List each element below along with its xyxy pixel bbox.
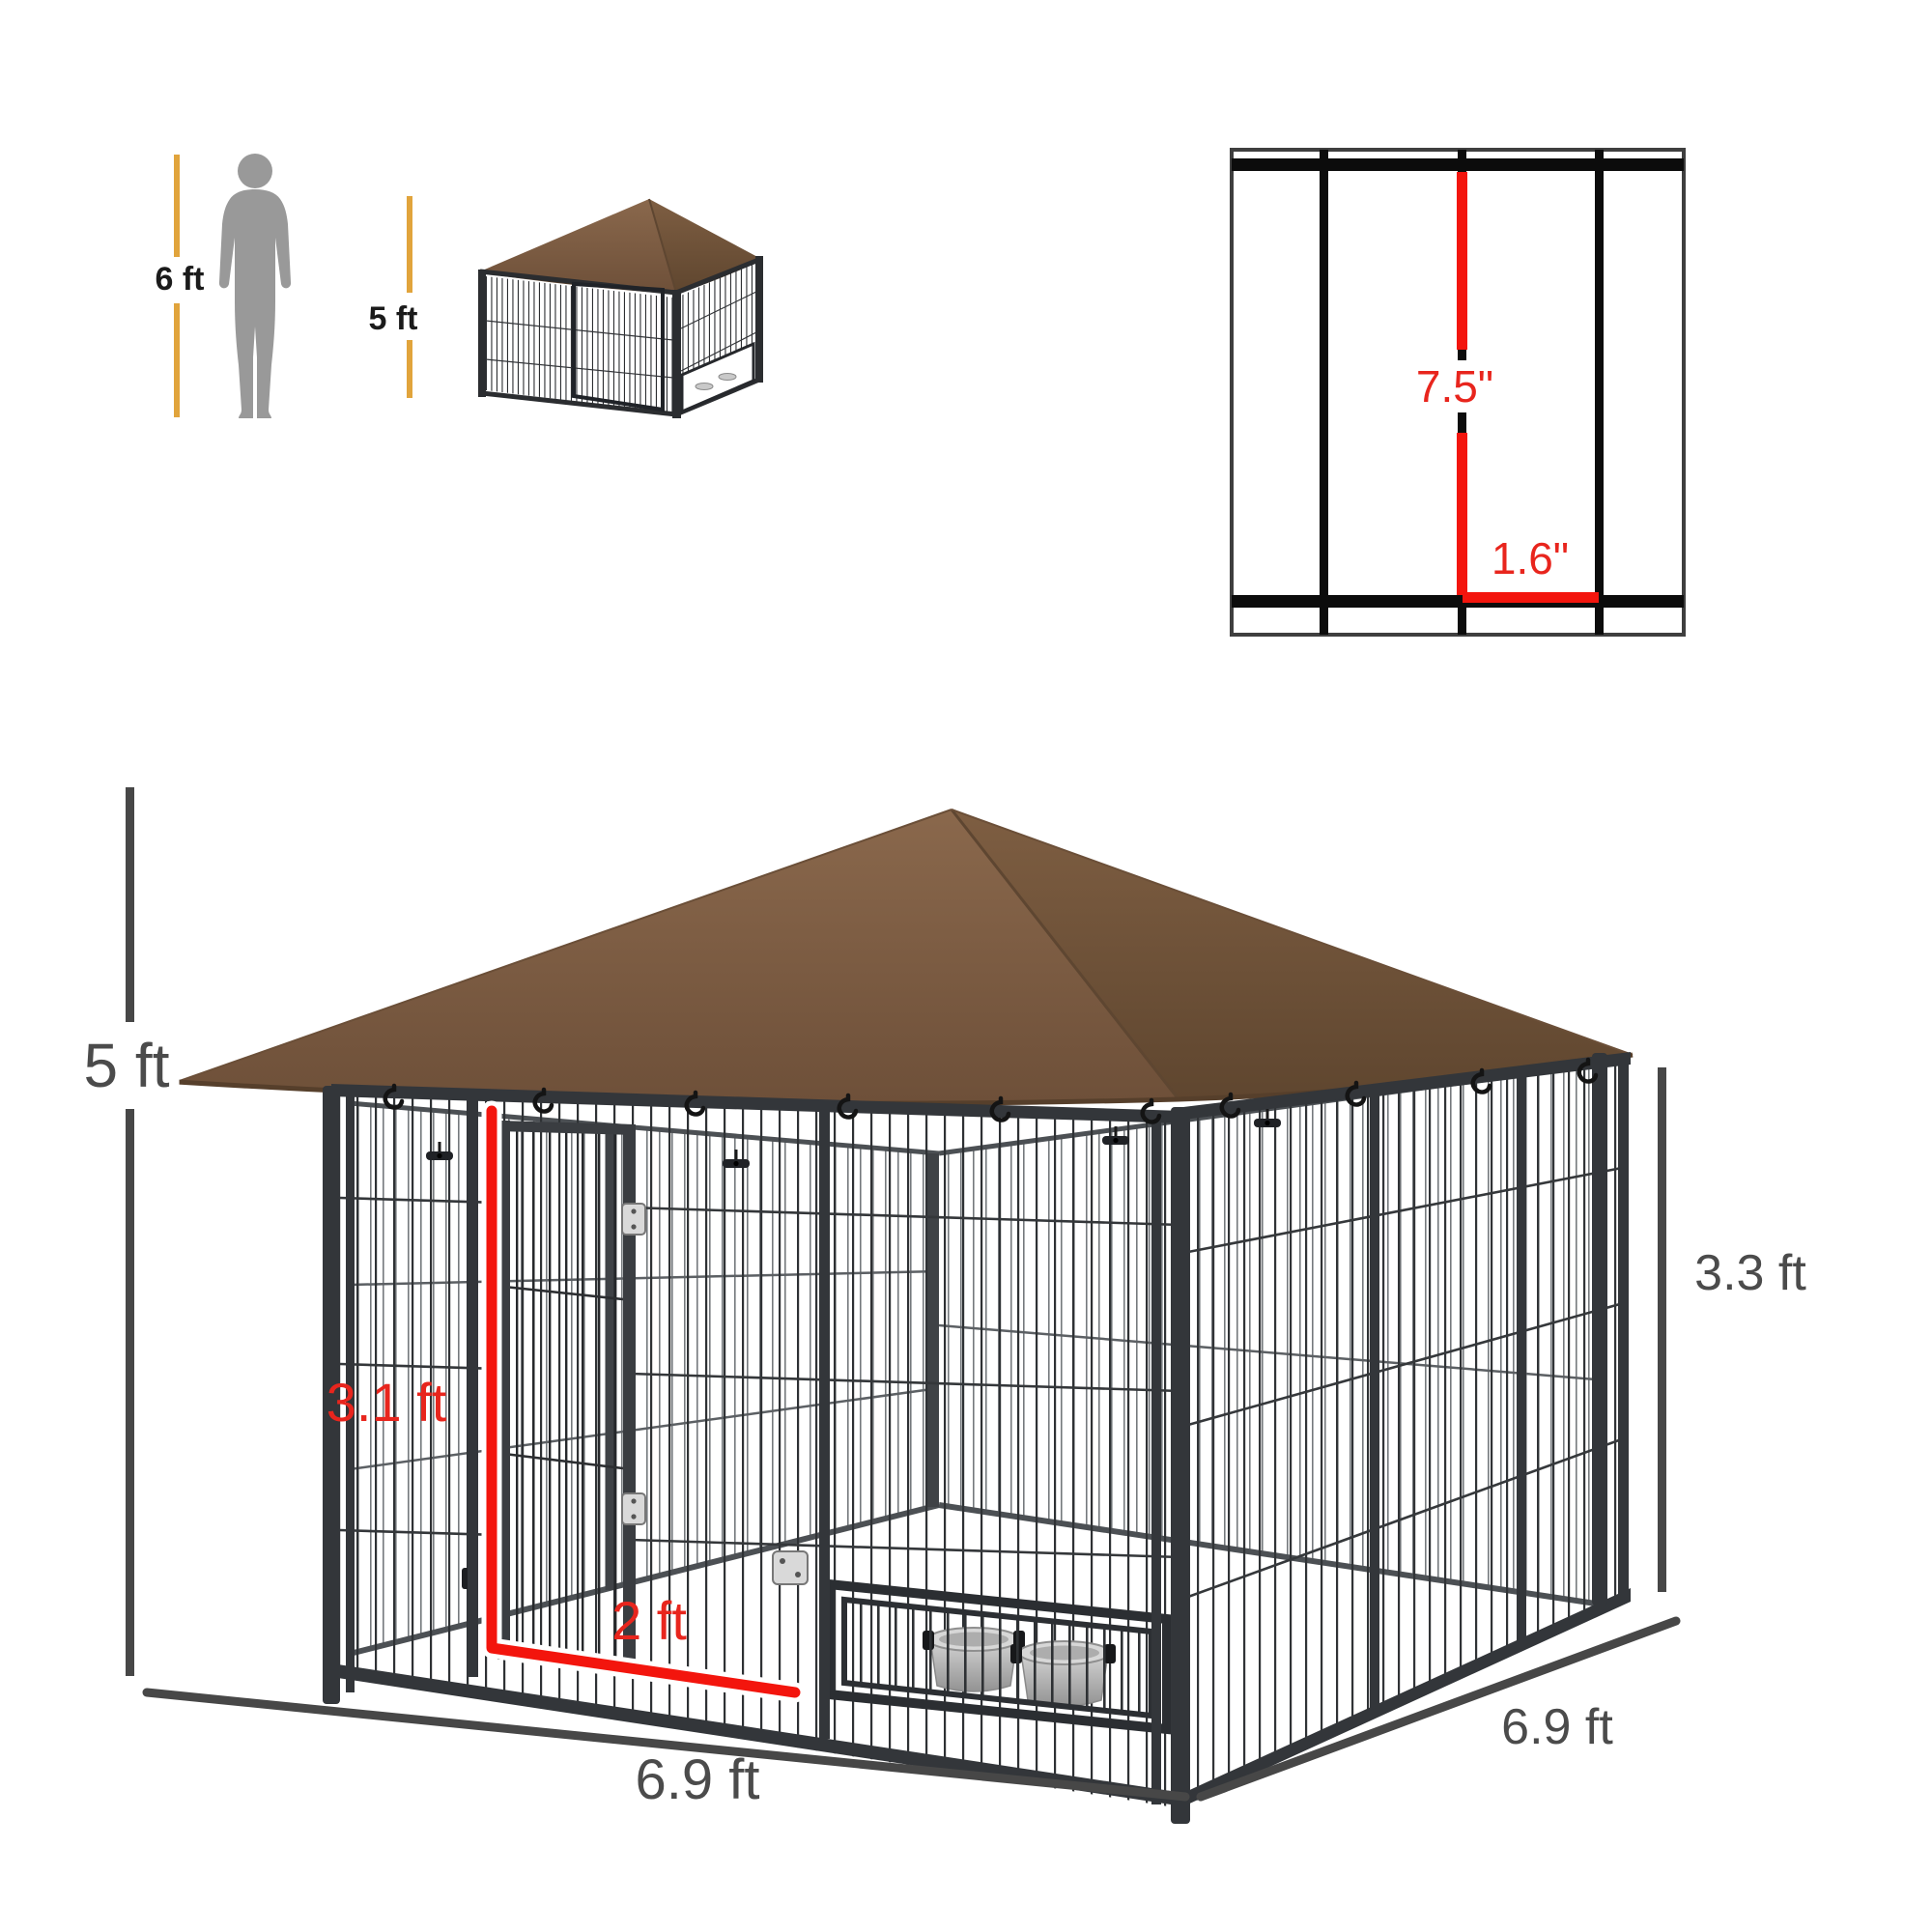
person-silhouette-icon bbox=[219, 154, 291, 418]
main-kennel-illustration bbox=[177, 810, 1633, 1824]
door-height-label: 3.1 ft bbox=[327, 1376, 447, 1430]
kennel-thumbnail bbox=[478, 199, 763, 418]
door-width-label: 2 ft bbox=[611, 1594, 687, 1648]
height-dimension-line bbox=[126, 787, 134, 1676]
wire-vertical-spacing-label: 7.5" bbox=[1406, 360, 1503, 412]
horizontal-spacing-line bbox=[1463, 592, 1599, 603]
panel-height-label: 3.3 ft bbox=[1694, 1248, 1806, 1298]
tray-latch bbox=[773, 1551, 808, 1584]
front-width-label: 6.9 ft bbox=[636, 1752, 760, 1808]
wire-horizontal-spacing-label: 1.6" bbox=[1492, 536, 1569, 581]
kennel-diagram-canvas bbox=[0, 0, 1932, 1932]
product-dimension-image: 6 ft 5 ft 7.5" 1.6" 5 ft 3.3 ft 6.9 ft 6… bbox=[0, 0, 1932, 1932]
thumbnail-height-ruler bbox=[407, 196, 412, 398]
door-hinge-bottom bbox=[622, 1493, 645, 1524]
panel-height-dimension-line bbox=[1658, 1067, 1666, 1592]
canopy-roof bbox=[177, 810, 1633, 1103]
person-height-label: 6 ft bbox=[146, 259, 214, 299]
overall-height-label: 5 ft bbox=[74, 1031, 180, 1100]
side-depth-label: 6.9 ft bbox=[1501, 1702, 1613, 1752]
thumbnail-height-label: 5 ft bbox=[359, 298, 428, 339]
door-hinge-top bbox=[622, 1204, 645, 1235]
